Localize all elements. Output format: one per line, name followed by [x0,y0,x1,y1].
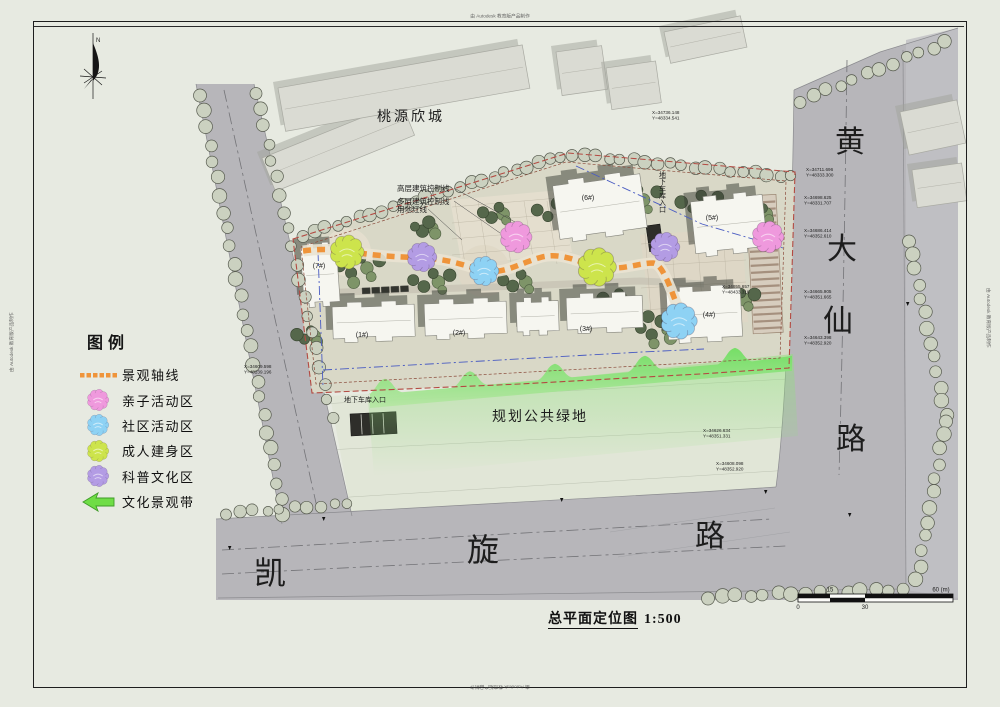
tree [274,505,284,515]
legend-item-label: 社区活动区 [122,416,195,435]
tree [423,216,436,229]
tree [938,35,952,49]
tree [328,412,339,423]
plan-label-garage-entrance-north: 地下车库入口 [659,170,667,213]
tree [278,207,291,220]
tree [418,281,430,293]
tree [244,339,258,353]
tree [934,393,949,408]
tree [919,305,932,318]
tree [756,589,768,601]
coordinate-label: X=34655.657 [722,284,750,289]
building-number: (5#) [706,215,718,222]
watermark-right: 由 Autodesk 教育版产品制作 [985,288,992,348]
coordinate-label: X=34698.625 [804,195,832,200]
flower-center [584,254,611,281]
tree [268,458,280,470]
tree [256,119,269,132]
landscape-axis-icon [78,363,122,387]
flower-center [91,393,106,408]
tree [807,88,821,102]
flower-center [655,237,675,257]
building-number: (1#) [356,332,368,339]
tree [289,501,300,512]
road-name-char: 路 [695,520,725,553]
activity-zone-flower [501,221,532,253]
tree [676,160,687,171]
car [400,286,408,292]
tree [913,47,924,58]
tree [794,97,806,109]
north-compass: N [80,33,106,99]
flower-center [412,247,432,267]
tree [234,505,247,518]
coordinate-label: X=34736.148 [652,110,680,115]
tree [264,139,275,150]
building-number: (7#) [313,263,325,270]
axis-dash [87,373,92,378]
road-name-char: 黄 [835,126,865,159]
tree [836,81,847,92]
tree [475,174,488,187]
axis-dash [106,373,111,378]
tree [702,592,715,605]
tree [206,140,218,152]
legend-item-label: 成人建身区 [122,441,195,460]
coordinate-label: Y=48333.300 [806,173,834,178]
tree [902,52,913,63]
tree [638,156,652,170]
legend-item: 社区活动区 [78,413,218,438]
legend-item-label: 景观轴线 [122,365,180,384]
coordinate-label: Y=48433.318 [722,290,750,295]
road-name-char: 路 [836,423,866,456]
axis-dash [80,373,85,378]
plan-label-estate-name: 桃源欣城 [377,109,445,125]
axis-dash [100,373,105,378]
tree [254,102,268,116]
tree [922,501,937,516]
coordinate-label: X=34609.598 [244,364,272,369]
tree [199,120,213,134]
tree [246,504,258,516]
tree [921,516,935,530]
coordinate-label: Y=48352.920 [804,341,832,346]
tree [494,202,504,212]
coordinate-label: Y=48334.541 [652,116,680,121]
tree [276,493,289,506]
tree [915,545,927,557]
tree [614,154,625,165]
tree [348,276,360,288]
parking-hatch [750,257,778,258]
tree [819,83,832,96]
tree [252,376,265,389]
car [362,288,370,294]
legend: 图例 景观轴线 亲子活动区 社区活动区 成人建身区 科普文化区 文化景观带 [78,329,218,514]
activity-zone-flower [651,232,680,261]
tree [443,269,456,282]
tree [914,560,928,574]
legend-item: 科普文化区 [78,464,218,489]
parent-child-zone-icon [78,388,122,412]
parking-hatch [752,285,780,286]
tree [907,261,921,275]
tree [934,459,946,471]
tree [241,325,253,337]
legend-item-label: 亲子活动区 [122,391,195,410]
title-scale: 1:500 [644,612,682,627]
tree [217,207,231,221]
tree [784,587,799,602]
tree [291,259,304,272]
tree [846,75,857,86]
activity-zone-flower [88,389,109,410]
tree [908,572,923,587]
tree [197,103,212,118]
activity-zone-flower [88,415,109,436]
tree [920,529,932,541]
tree [206,156,218,168]
compass-blade [84,79,93,89]
activity-zone-flower [331,235,365,269]
fitness-zone-icon [78,439,122,463]
coordinate-label: Y=48331.707 [804,201,832,206]
tree [342,499,352,509]
watermark-bottom: 由 Autodesk 教育版产品制作 [470,684,530,691]
tree [264,440,278,454]
flower-center [91,418,106,433]
legend-item-label: 文化景观带 [122,492,195,511]
tree [477,207,488,218]
tree [223,240,235,252]
flower-center [91,469,106,484]
plan-label-garage-entrance-south: 地下车库入口 [344,395,386,404]
culture-belt-arrow-icon [78,490,122,514]
tree [221,509,232,520]
activity-zone-flower [408,242,437,271]
tree [366,272,376,282]
tree [408,275,419,286]
tree [212,189,227,204]
tree [555,152,565,162]
tree [728,588,742,602]
flower-center [474,261,494,281]
tree [250,88,262,100]
tree [330,499,340,509]
parking-hatch [753,313,781,314]
legend-item: 文化景观带 [78,489,218,514]
flower-center [757,226,779,248]
tree [307,327,318,338]
parking-hatch [754,320,782,321]
tree [259,409,271,421]
legend-item-label: 科普文化区 [122,467,195,486]
flower-center [91,443,106,458]
legend-item: 成人建身区 [78,438,218,463]
tree [320,379,332,391]
tree [318,221,331,234]
coordinate-label: Y=48352.920 [716,467,744,472]
tree [531,204,543,216]
coordinate-label: Y=48351.331 [703,434,731,439]
tree [725,167,736,178]
tree [760,169,773,182]
activity-zone-flower [88,466,109,487]
coordinate-label: X=34608.098 [716,461,744,466]
north-label: N [96,38,100,44]
tree [665,158,676,169]
coordinate-label: Y=48239.196 [244,370,272,375]
tree [914,279,926,291]
tree [375,206,388,219]
tree [545,153,556,164]
plan-label-red-line: 用地红线 [397,204,427,214]
sheet-title: 总平面定位图1:500 [548,608,682,628]
watermark-left: 由 Autodesk 教育版产品制作 [8,312,15,372]
tree [698,161,712,175]
tree [430,228,441,239]
tree [887,58,900,71]
tree [300,501,313,514]
tree [283,223,294,234]
tree [928,350,940,362]
scale-bar-segment [830,598,865,602]
tree [235,289,248,302]
tree [263,506,273,516]
axis-dash [93,373,98,378]
tree [237,309,249,321]
drawing-sheet: N 0 15 30 60 (m) 桃源欣城规划公共绿地高层建筑控制线多层建筑控制… [0,0,1000,707]
road-name-char: 凯 [254,555,286,591]
tree [903,235,916,248]
tree [566,150,578,162]
building-number: (3#) [580,326,592,333]
tree [265,156,276,167]
plan-label-public-green: 规划公共绿地 [492,409,588,425]
watermark-top: 由 Autodesk 教育版产品制作 [470,12,530,19]
tree [222,222,234,234]
coordinate-label: X=34665.905 [804,289,832,294]
building-number: (6#) [582,195,594,202]
tree [920,321,935,336]
tree [253,391,264,402]
tree [363,208,377,222]
scale-bar-segment [798,594,830,598]
tree [194,89,207,102]
road-name-char: 仙 [823,305,853,338]
building-number: (2#) [453,330,465,337]
scale-label-30: 30 [862,605,869,611]
tree [930,366,942,378]
tree [315,501,327,513]
scale-label-0: 0 [796,605,800,611]
tree [924,337,938,351]
tree [914,293,926,305]
scale-bar-segment [865,594,953,598]
scale-label-15: 15 [827,588,834,594]
tree [649,338,659,348]
tree [905,247,920,262]
tree [498,167,508,177]
flower-center [335,240,358,263]
tree [321,394,331,404]
tree [937,427,952,442]
activity-zone-flower [578,248,616,286]
tree [271,170,283,182]
flower-center [667,309,692,334]
tree [211,170,224,183]
activity-zone-flower [661,303,697,339]
parking-hatch [751,278,779,279]
tree [271,478,282,489]
tree [259,426,273,440]
flower-center [505,226,527,248]
tree [410,222,419,231]
parking-hatch [753,306,781,307]
tree [927,485,940,498]
car [391,286,399,292]
tree [228,258,242,272]
scale-label-60: 60 (m) [932,588,949,594]
tree [228,272,243,287]
parking-hatch [751,271,779,272]
tree [745,591,757,603]
tree [428,268,438,278]
tree [940,415,953,428]
coordinate-label: X=34626.634 [703,428,731,433]
tree [935,381,949,395]
tree [273,189,287,203]
parking-hatch [754,327,782,328]
activity-zone-flower [470,256,499,285]
tree [744,302,754,312]
building-number: (4#) [703,312,715,319]
coordinate-label: Y=48351.665 [804,295,832,300]
activity-zone-flower [88,440,109,461]
axis-dash [113,373,118,378]
road-name-char: 大 [827,233,857,266]
tree [748,288,761,301]
legend-item: 景观轴线 [78,362,218,387]
tree [933,441,947,455]
road-name-char: 旋 [467,532,499,568]
tree [928,473,940,485]
tree [872,63,886,77]
tree [714,162,726,174]
community-zone-icon [78,413,122,437]
science-culture-zone-icon [78,464,122,488]
coordinate-label: X=34711.696 [806,167,834,172]
title-text: 总平面定位图 [548,612,638,629]
culture-belt-arrow [83,493,114,511]
tree [897,583,909,595]
tree [525,285,534,294]
legend-item: 亲子活动区 [78,387,218,412]
tree [642,311,654,323]
legend-title: 图例 [87,329,218,353]
activity-zone-flower [753,221,784,253]
plan-label-ctrl-highrise: 高层建筑控制线 [397,183,450,193]
tree [291,328,304,341]
tree [297,231,309,243]
parking-hatch [751,264,779,265]
